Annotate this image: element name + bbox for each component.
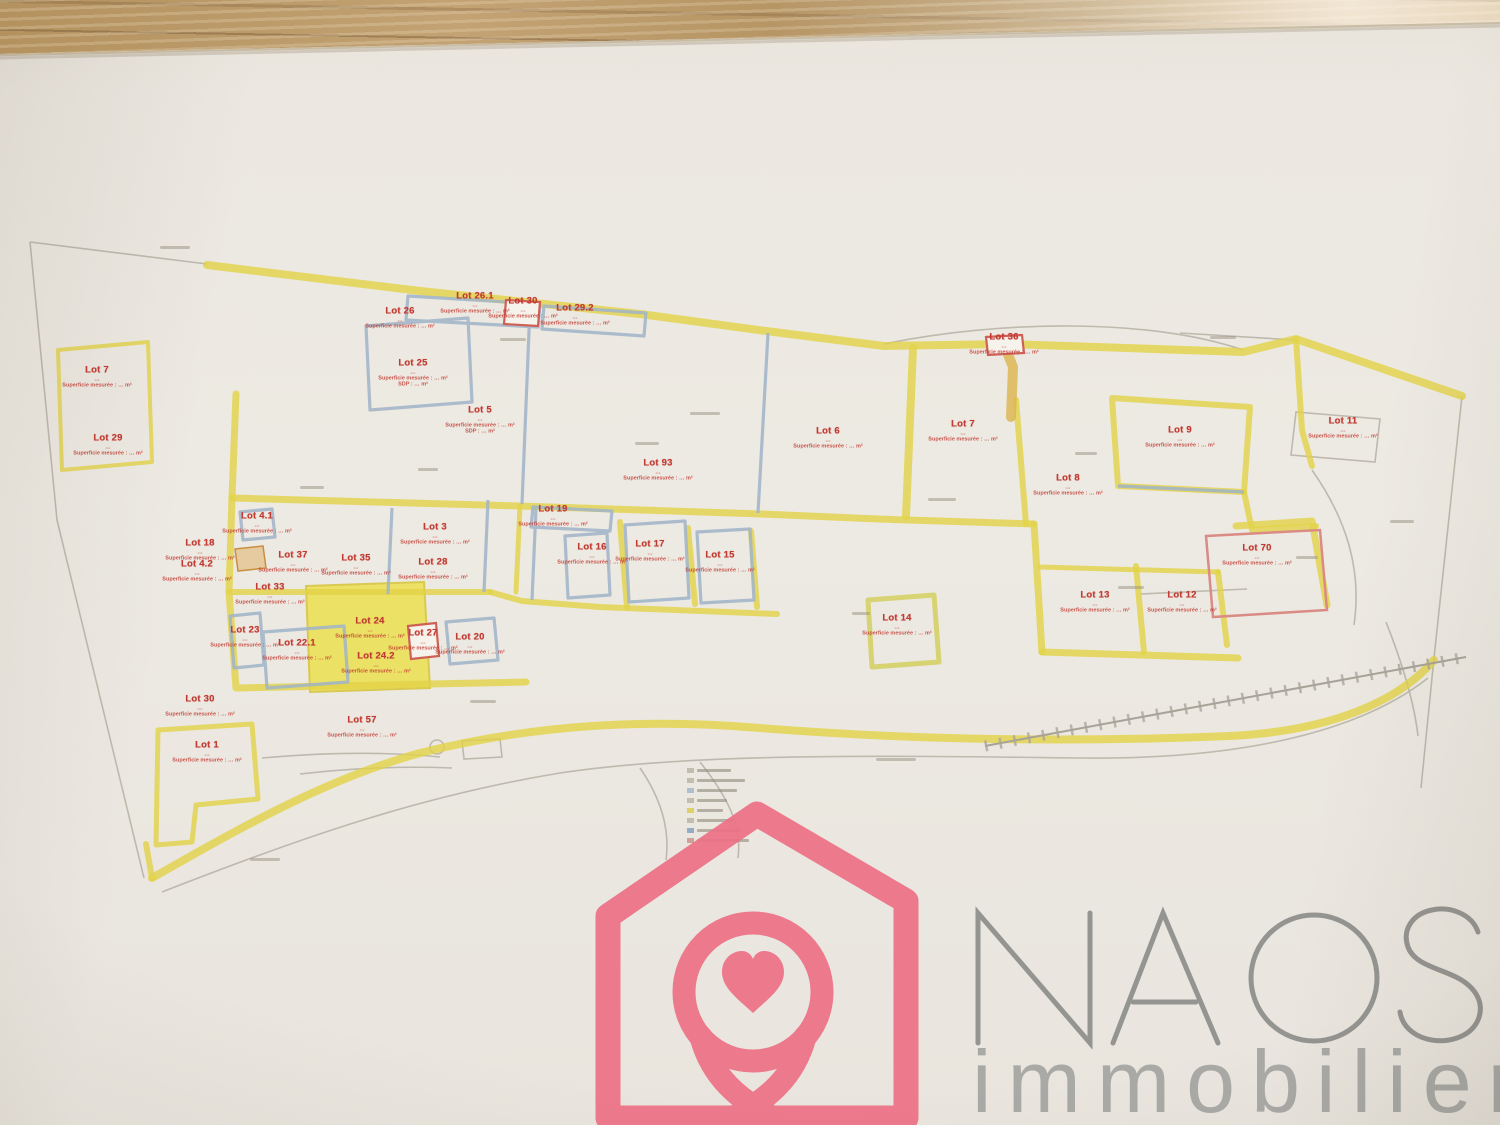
heart-icon	[722, 951, 784, 1013]
immobilier-wordmark: immobilier	[972, 1032, 1500, 1125]
location-pin-icon	[684, 923, 822, 1117]
naos-watermark: immobilier	[0, 0, 1500, 1125]
plan-paper-sheet: Lot 7…Superficie mesurée : … m²Lot 29…Su…	[0, 0, 1500, 1125]
naos-wordmark	[978, 909, 1480, 1043]
photo-scene: Lot 7…Superficie mesurée : … m²Lot 29…Su…	[0, 0, 1500, 1125]
